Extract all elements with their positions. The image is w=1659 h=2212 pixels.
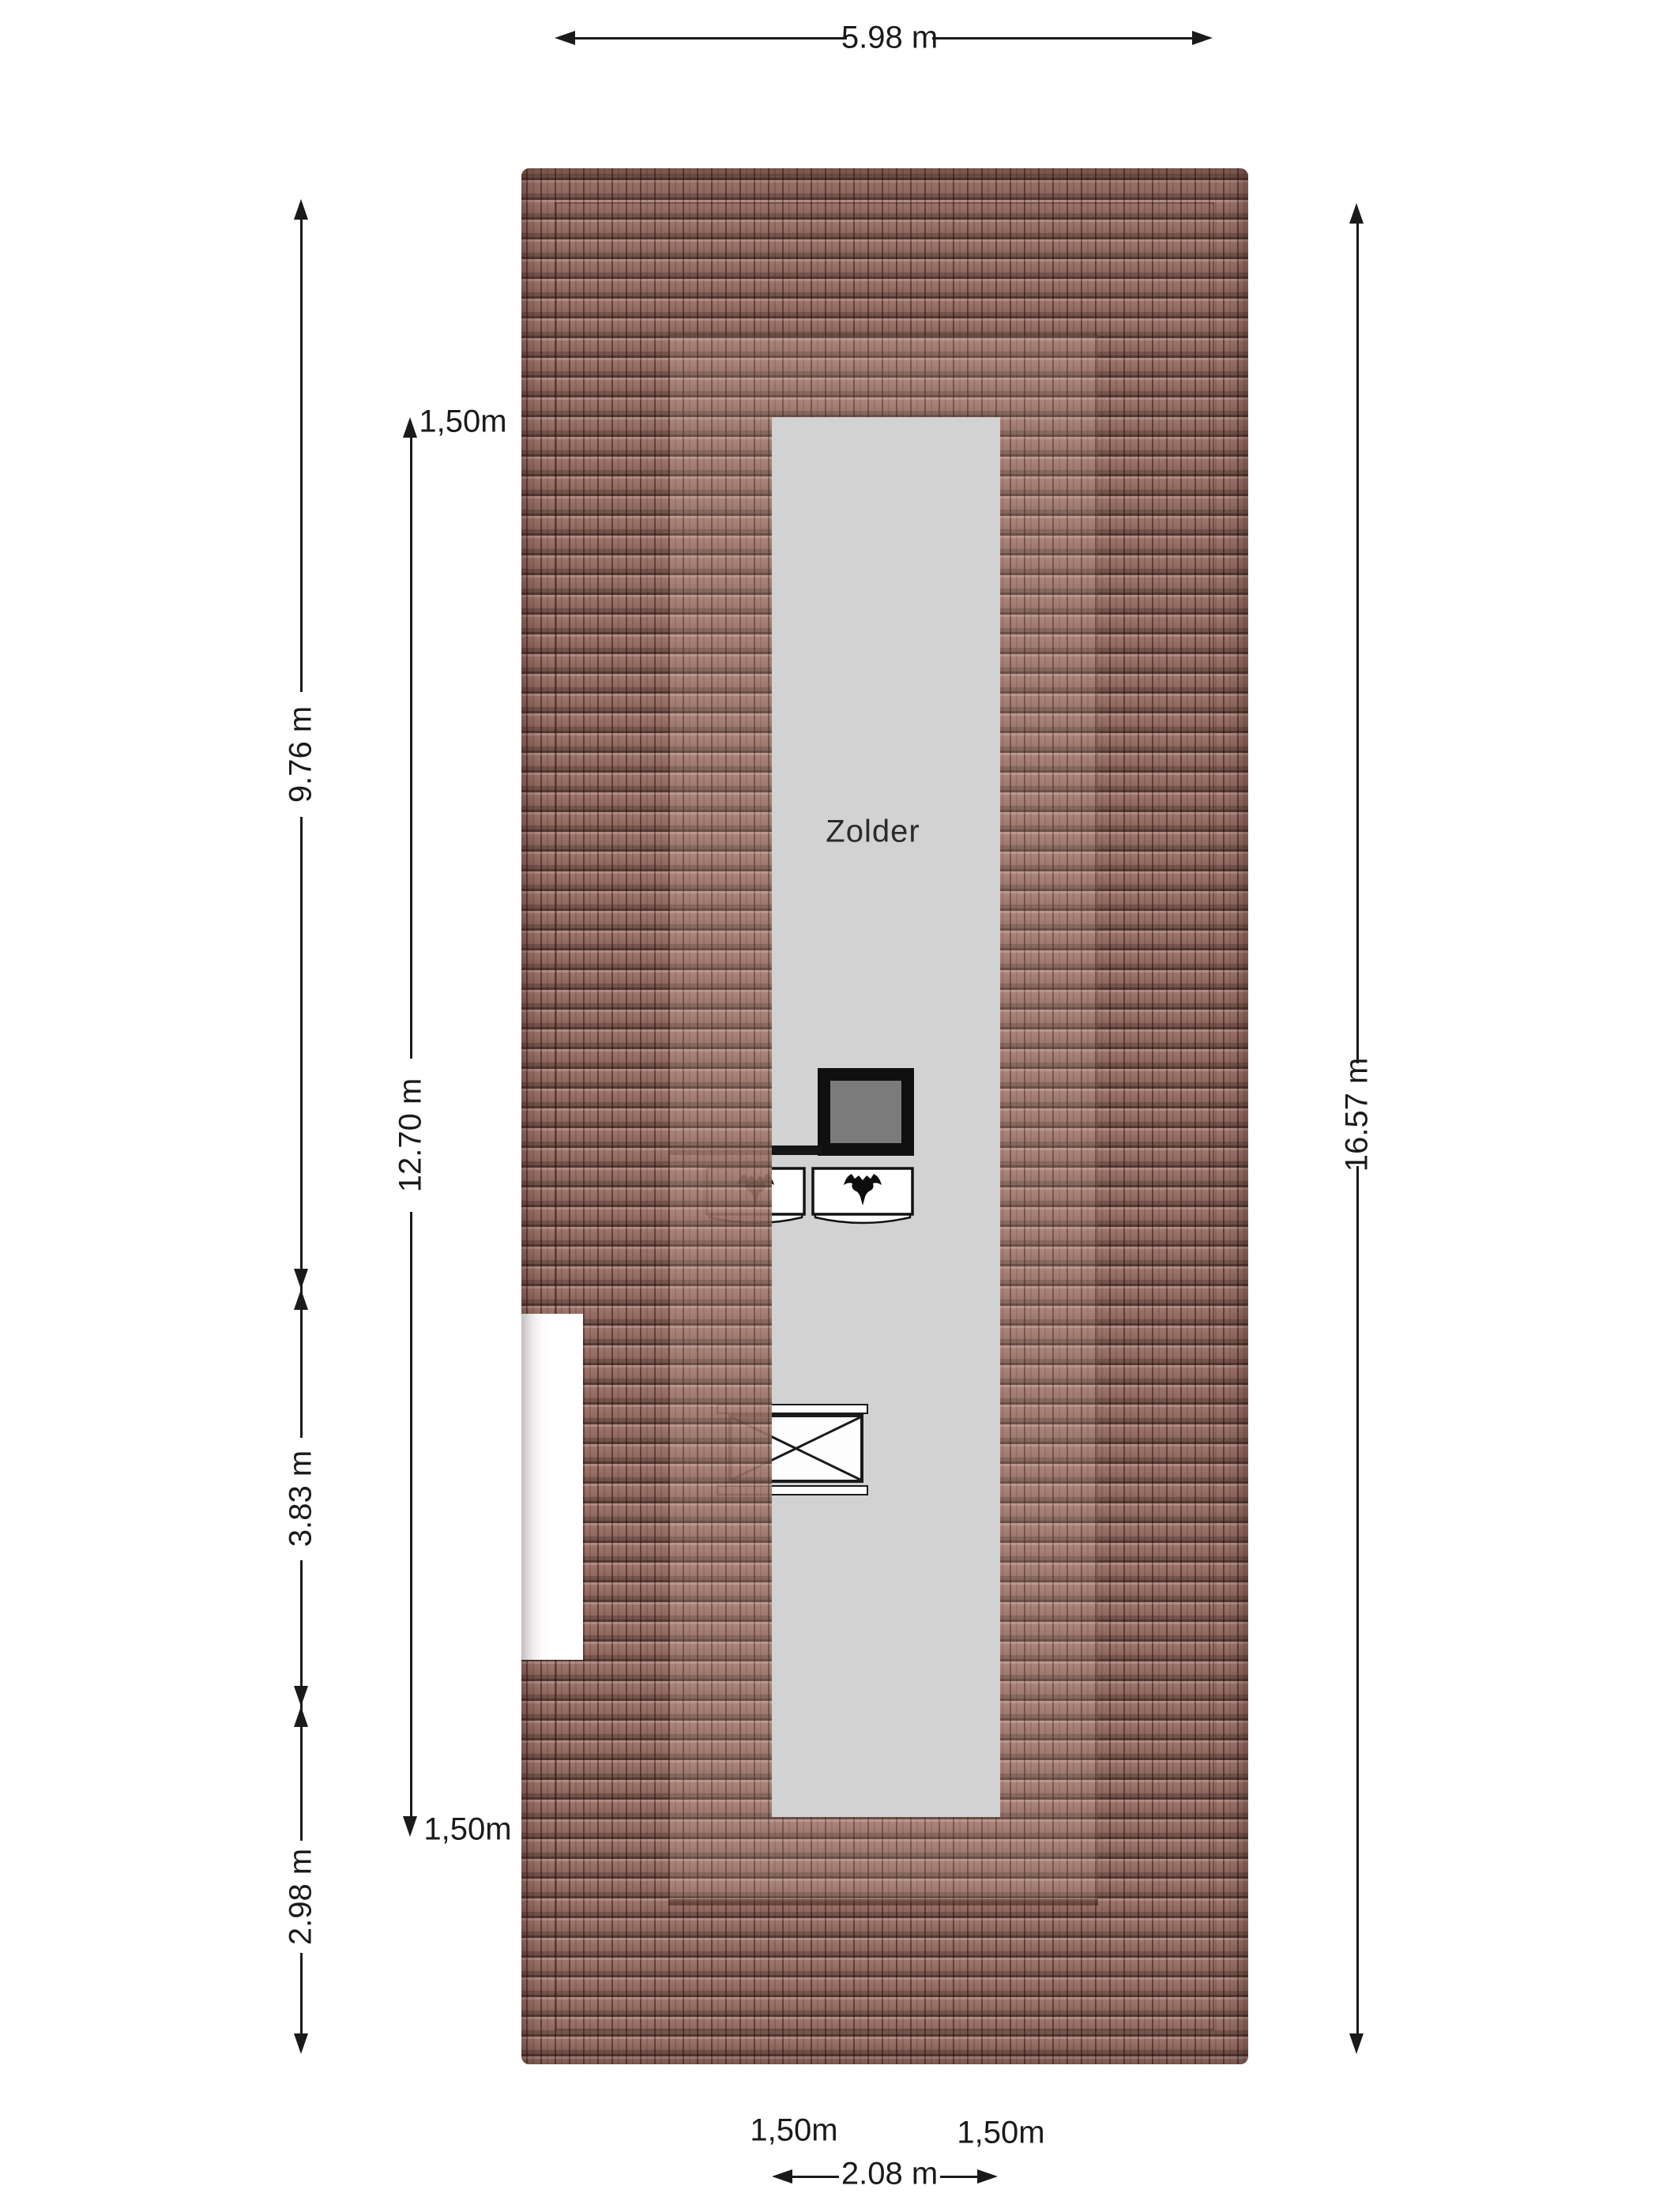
dim-right-line-1: [1356, 222, 1359, 1063]
dim-right-label: 16.57 m: [1340, 1058, 1375, 1172]
dim-top-line-right: [932, 37, 1194, 39]
dim-left-outer-break1-down-icon: [294, 1269, 308, 1289]
dim-top-line-left: [574, 37, 847, 39]
dim-right-arrow-top-icon: [1349, 203, 1364, 224]
dim-left-inner-arrow-bottom-icon: [403, 1816, 417, 1837]
dim-left-outer-break1-up-icon: [294, 1289, 308, 1310]
dim-left-outer-break2-up-icon: [294, 1706, 308, 1727]
dim-top-arrow-right-icon: [1192, 31, 1213, 45]
dim-left-inner-arrow-top-icon: [403, 417, 417, 438]
dim-left-inner-label-bottom: 1,50m: [423, 1812, 511, 1848]
floorplan-canvas: Zolder 5.98 m 9.76 m 3.83 m 2.98 m 1,50m…: [0, 0, 1659, 2212]
dim-right-line-2: [1356, 1166, 1359, 2035]
roof: [521, 168, 1248, 2064]
dim-bottom-arrow-right-icon: [977, 2169, 998, 2184]
dim-left-outer-label-lower: 2.98 m: [284, 1849, 319, 1945]
dim-left-inner-label-length: 12.70 m: [393, 1078, 429, 1193]
dim-left-outer-line-2: [300, 817, 303, 1438]
dim-left-outer-line-4: [300, 1953, 303, 2035]
dim-left-inner-line-1: [410, 438, 412, 1059]
dim-bottom-label-width: 2.08 m: [841, 2157, 938, 2192]
dim-left-outer-line-1: [300, 218, 303, 692]
dim-bottom-label-left-offset: 1,50m: [750, 2113, 837, 2149]
dim-top-arrow-left-icon: [555, 31, 575, 45]
dim-left-outer-label-middle: 3.83 m: [284, 1450, 319, 1547]
dim-right-arrow-bottom-icon: [1349, 2033, 1364, 2054]
roof-edge-shading: [521, 168, 1248, 2064]
dim-left-inner-label-top: 1,50m: [419, 404, 506, 440]
dim-left-inner-line-2: [410, 1212, 412, 1817]
room-label: Zolder: [826, 814, 920, 850]
dim-left-outer-arrow-top-icon: [294, 199, 308, 220]
dim-bottom-label-right-offset: 1,50m: [957, 2116, 1044, 2151]
dim-left-outer-label-upper: 9.76 m: [284, 706, 319, 803]
dim-top-label: 5.98 m: [841, 21, 938, 56]
dim-bottom-line-right: [940, 2176, 980, 2178]
dim-left-outer-break2-down-icon: [294, 1686, 308, 1706]
dim-left-outer-arrow-bottom-icon: [294, 2033, 308, 2054]
dim-bottom-line-left: [790, 2176, 839, 2178]
